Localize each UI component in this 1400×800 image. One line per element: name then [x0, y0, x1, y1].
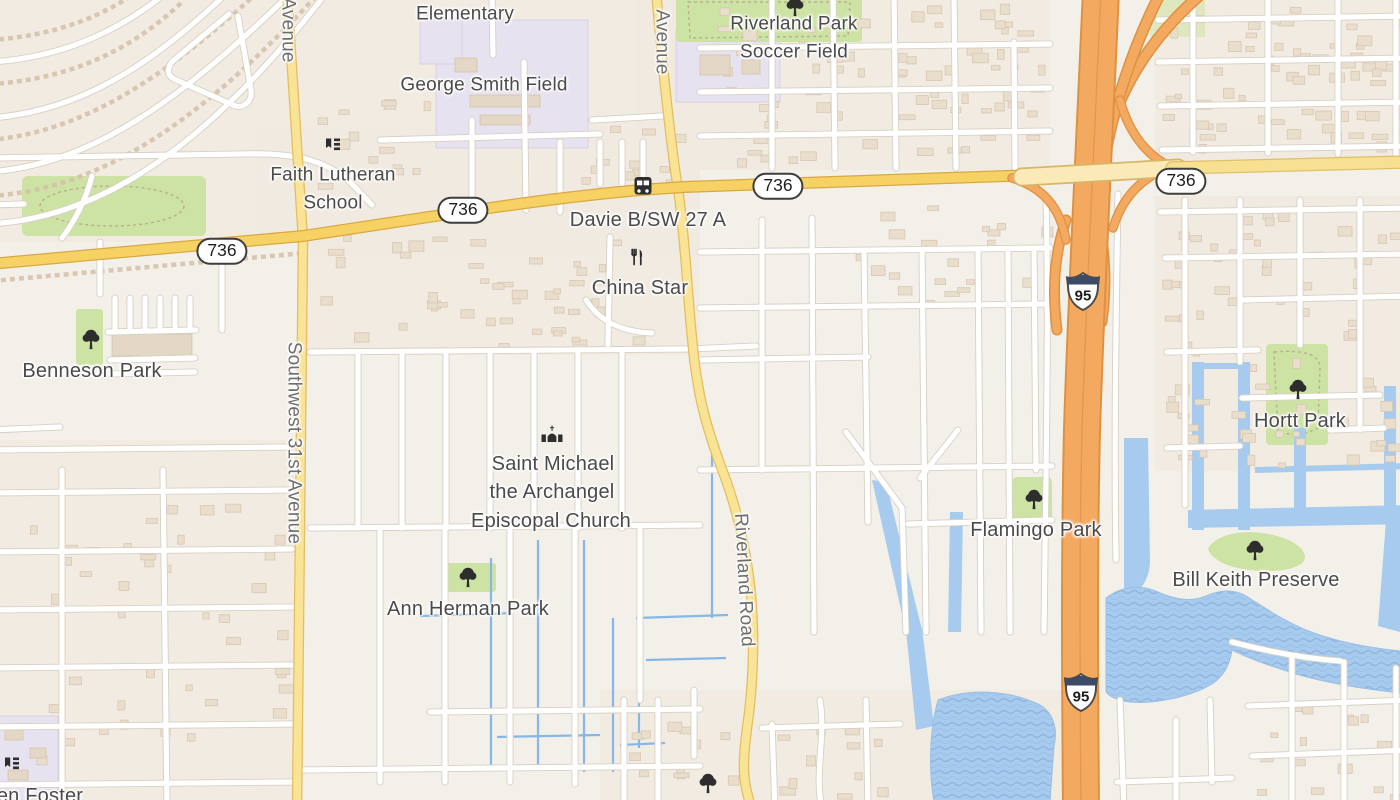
label-riverland-park-line2[interactable]: Soccer Field	[740, 43, 848, 62]
route-shield-736-1: 736	[196, 238, 247, 265]
label-saint-michael-line3[interactable]: Episcopal Church	[471, 511, 631, 531]
map-canvas[interactable]: Elementary George Smith Field Riverland …	[0, 0, 1400, 800]
label-george-smith-field[interactable]: George Smith Field	[400, 76, 567, 95]
label-flamingo-park[interactable]: Flamingo Park	[970, 520, 1102, 540]
restaurant-icon[interactable]	[627, 247, 647, 267]
label-ann-herman-park[interactable]: Ann Herman Park	[387, 599, 549, 619]
label-road-avenue-center: Avenue	[653, 9, 672, 74]
tree-icon[interactable]	[1288, 379, 1309, 402]
school-icon[interactable]	[324, 137, 342, 153]
tree-icon[interactable]	[81, 329, 102, 352]
label-foster-partial[interactable]: en Foster	[0, 786, 83, 800]
tree-icon[interactable]	[458, 567, 479, 590]
interstate-shield-95-2: 95	[1063, 672, 1099, 712]
svg-text:95: 95	[1075, 288, 1092, 305]
label-benneson-park[interactable]: Benneson Park	[22, 361, 161, 381]
svg-text:95: 95	[1073, 689, 1090, 706]
tree-icon[interactable]	[1024, 489, 1045, 512]
map-graphics	[0, 0, 1400, 800]
label-china-star[interactable]: China Star	[592, 278, 689, 298]
church-icon[interactable]	[539, 422, 565, 444]
label-road-avenue-top-left: Avenue	[279, 0, 298, 63]
label-bill-keith-preserve[interactable]: Bill Keith Preserve	[1172, 570, 1339, 590]
interstate-shield-95-1: 95	[1065, 271, 1101, 311]
label-saint-michael-line1[interactable]: Saint Michael	[492, 454, 615, 474]
label-elementary[interactable]: Elementary	[416, 5, 514, 24]
tree-icon[interactable]	[698, 773, 719, 796]
route-shield-736-4: 736	[1155, 168, 1206, 195]
label-saint-michael-line2[interactable]: the Archangel	[490, 482, 615, 502]
route-shield-736-2: 736	[437, 197, 488, 224]
school-icon[interactable]	[3, 756, 21, 772]
tree-icon[interactable]	[785, 0, 806, 19]
bus-icon[interactable]	[631, 174, 655, 198]
label-faith-lutheran-line1[interactable]: Faith Lutheran	[270, 166, 395, 185]
label-faith-lutheran-line2[interactable]: School	[303, 194, 362, 213]
tree-icon[interactable]	[1245, 540, 1266, 563]
route-shield-736-3: 736	[752, 173, 803, 200]
label-davie-bus-stop[interactable]: Davie B/SW 27 A	[570, 210, 726, 230]
label-hortt-park[interactable]: Hortt Park	[1254, 411, 1346, 431]
label-road-southwest-31st-avenue: Southwest 31st Avenue	[285, 342, 304, 544]
